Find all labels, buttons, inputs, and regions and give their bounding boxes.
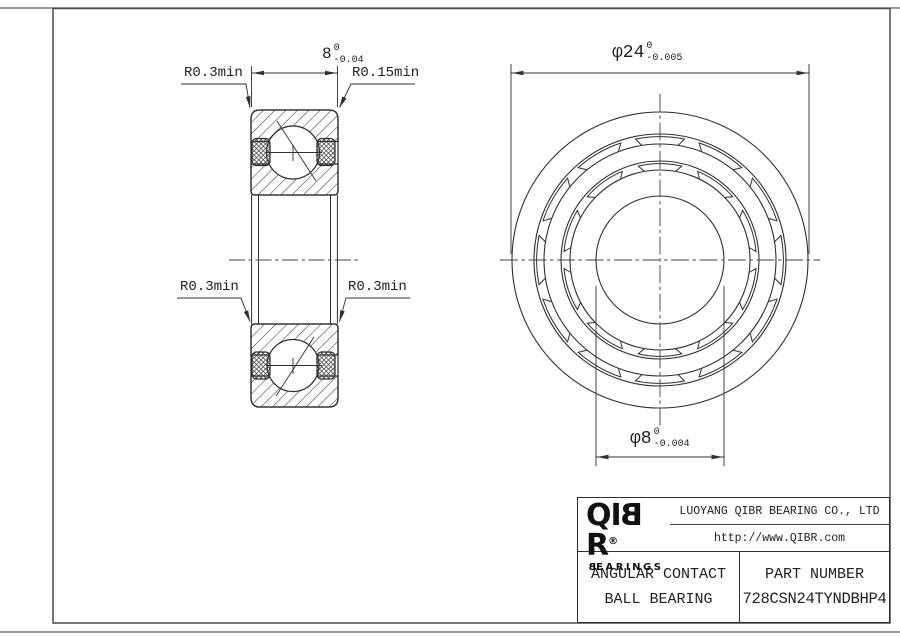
radius-label-mid-right: R0.3min <box>348 280 407 294</box>
logo-letter: B <box>621 501 643 531</box>
dim-outer-diameter: φ24 0 -0.005 <box>612 44 682 64</box>
part-number-value: 728CSN24TYNDBHP4 <box>742 590 886 608</box>
company-website: http://www.QIBR.com <box>670 525 889 551</box>
company-logo: QIBR® BEARINGS <box>578 498 670 551</box>
logo-sub-letter: B <box>586 562 596 573</box>
bearing-type-line2: BALL BEARING <box>604 591 712 608</box>
bearing-type-line1: ANGULAR CONTACT <box>591 566 726 583</box>
logo-letter: I <box>611 498 621 533</box>
dim-bore-value: φ8 <box>630 430 652 448</box>
radius-label-mid-left: R0.3min <box>180 280 239 294</box>
front-view <box>500 94 820 428</box>
company-name: LUOYANG QIBR BEARING CO., LTD <box>670 498 889 525</box>
title-block-part-row: ANGULAR CONTACT BALL BEARING PART NUMBER… <box>578 551 889 622</box>
part-number-cell: PART NUMBER 728CSN24TYNDBHP4 <box>740 552 889 622</box>
radius-label-top-left: R0.3min <box>184 66 243 80</box>
radius-label-top-right: R0.15min <box>352 66 419 80</box>
dim-bore-tol-lower: -0.004 <box>654 439 690 451</box>
company-info: LUOYANG QIBR BEARING CO., LTD http://www… <box>670 498 889 551</box>
dim-bore-tol-upper: 0 <box>654 427 690 439</box>
registered-mark-icon: ® <box>608 536 618 547</box>
dim-width-tol-upper: 0 <box>334 43 364 55</box>
dim-bore-diameter: φ8 0 -0.004 <box>630 430 690 450</box>
dim-od-tol-lower: -0.005 <box>646 53 682 65</box>
dim-width-value: 8 <box>322 46 332 62</box>
title-block: QIBR® BEARINGS LUOYANG QIBR BEARING CO.,… <box>577 497 890 623</box>
part-number-label: PART NUMBER <box>765 566 864 583</box>
drawing-sheet: 8 0 -0.04 φ24 0 -0.005 φ8 0 -0.004 R0.3m… <box>0 0 900 636</box>
bearing-type-cell: ANGULAR CONTACT BALL BEARING <box>578 552 740 622</box>
dim-od-tol-upper: 0 <box>646 41 682 53</box>
section-view <box>229 110 360 407</box>
dim-od-value: φ24 <box>612 44 644 62</box>
dim-width: 8 0 -0.04 <box>322 46 364 66</box>
title-block-header-row: QIBR® BEARINGS LUOYANG QIBR BEARING CO.,… <box>578 498 889 551</box>
